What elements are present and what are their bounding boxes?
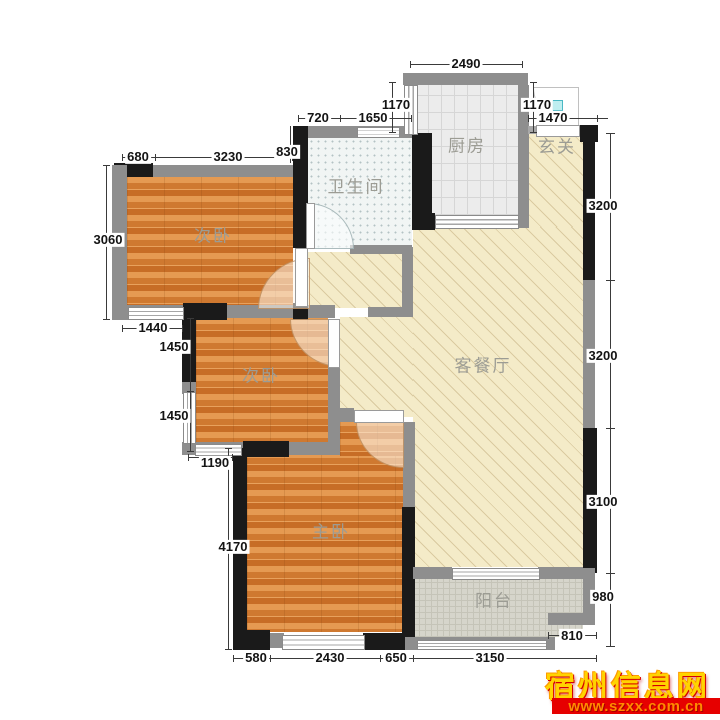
wall [413, 567, 452, 579]
watermark-site-url: www.szxx.com.cn [568, 699, 703, 714]
wall [403, 422, 415, 507]
wall [412, 213, 435, 230]
dim-tick [122, 154, 123, 161]
kitchen-sliding-door [435, 215, 519, 229]
dim-tick [225, 448, 232, 449]
dim-label-980: 980 [590, 590, 616, 604]
floor-master-bedroom [247, 452, 403, 632]
room-label-master: 主卧 [312, 524, 350, 541]
dim-label-650: 650 [383, 651, 409, 665]
dim-label-2430: 2430 [314, 651, 347, 665]
dim-label-1650: 1650 [357, 111, 390, 125]
dim-tick [596, 655, 597, 662]
dim-label-2490: 2490 [450, 57, 483, 71]
door-leaf [306, 203, 315, 249]
dim-tick [522, 61, 523, 68]
dim-tick [389, 132, 396, 133]
dim-tick [122, 325, 123, 332]
dim-label-1190: 1190 [199, 456, 231, 470]
dim-tick [530, 82, 537, 83]
dim-tick [225, 649, 232, 650]
dim-label-3200-mid: 3200 [587, 349, 620, 363]
watermark-banner: www.szxx.com.cn [552, 698, 720, 714]
dim-label-1440: 1440 [137, 321, 170, 335]
window [128, 307, 184, 320]
dim-label-3150: 3150 [474, 651, 507, 665]
dim-tick [596, 632, 597, 639]
floor-living-dining [413, 227, 583, 567]
dim-tick [411, 115, 412, 122]
dim-label-3100: 3100 [587, 495, 620, 509]
wall [340, 408, 354, 422]
dim-tick [548, 632, 549, 639]
room-label-balcony: 阳台 [475, 593, 513, 610]
dim-tick [187, 318, 194, 319]
dim-tick [298, 115, 299, 122]
room-label-bathroom: 卫生间 [328, 179, 385, 196]
wall [243, 441, 289, 457]
dim-tick [606, 280, 615, 281]
dim-label-4170: 4170 [217, 540, 250, 554]
dim-label-680: 680 [125, 150, 151, 164]
room-label-bedroom-mid: 次卧 [242, 368, 280, 385]
dim-label-580: 580 [243, 651, 269, 665]
wall [580, 125, 598, 142]
dim-label-720: 720 [305, 111, 331, 125]
window [417, 640, 547, 650]
wall [328, 365, 340, 452]
room-label-bedroom-top: 次卧 [194, 228, 232, 245]
dim-tick [103, 165, 110, 166]
wall [548, 613, 595, 625]
wall [538, 567, 583, 579]
dim-label-1170-left: 1170 [380, 98, 412, 112]
dim-tick [270, 655, 271, 662]
door-opening-entry [536, 125, 580, 137]
dim-tick [340, 115, 341, 122]
dim-tick [530, 132, 537, 133]
dim-tick [606, 428, 615, 429]
dim-tick [410, 61, 411, 68]
dim-tick [606, 646, 615, 647]
dim-label-3230: 3230 [212, 150, 245, 164]
dim-tick [389, 82, 396, 83]
window [282, 635, 365, 650]
dim-tick [233, 655, 234, 662]
dim-line [233, 658, 597, 659]
door-leaf [354, 410, 404, 423]
dim-tick [606, 133, 615, 134]
window [452, 568, 540, 580]
dim-tick [606, 573, 615, 574]
wall [368, 307, 413, 317]
room-label-entry: 玄关 [538, 139, 576, 156]
floor-plan: 680 3230 3060 830 720 1650 1170 2490 117… [0, 0, 720, 720]
dim-tick [597, 115, 598, 122]
room-label-kitchen: 厨房 [448, 138, 486, 155]
floor-living-hallway [340, 317, 413, 417]
room-label-living: 客餐厅 [455, 358, 512, 375]
dim-tick [182, 325, 183, 332]
dim-label-1470: 1470 [537, 111, 570, 125]
dim-label-1450-lower: 1450 [158, 409, 191, 423]
dim-tick [232, 454, 233, 461]
dim-label-3200-upper: 3200 [587, 199, 620, 213]
door-leaf [328, 319, 340, 368]
dim-tick [155, 154, 156, 161]
wall [403, 73, 528, 85]
dim-label-3060: 3060 [92, 233, 125, 247]
dim-label-1450-upper: 1450 [158, 340, 191, 354]
dim-label-830: 830 [274, 145, 300, 159]
dim-tick [187, 451, 194, 452]
dim-tick [188, 454, 189, 461]
floor-bath-corridor [308, 252, 408, 308]
dim-tick [380, 655, 381, 662]
dim-tick [103, 319, 110, 320]
dim-label-810: 810 [559, 629, 585, 643]
dim-line [190, 318, 191, 452]
dim-tick [187, 391, 194, 392]
wall [233, 630, 270, 650]
door-leaf [295, 248, 308, 307]
dim-tick [528, 115, 529, 122]
wall [153, 165, 293, 177]
dim-tick [413, 655, 414, 662]
